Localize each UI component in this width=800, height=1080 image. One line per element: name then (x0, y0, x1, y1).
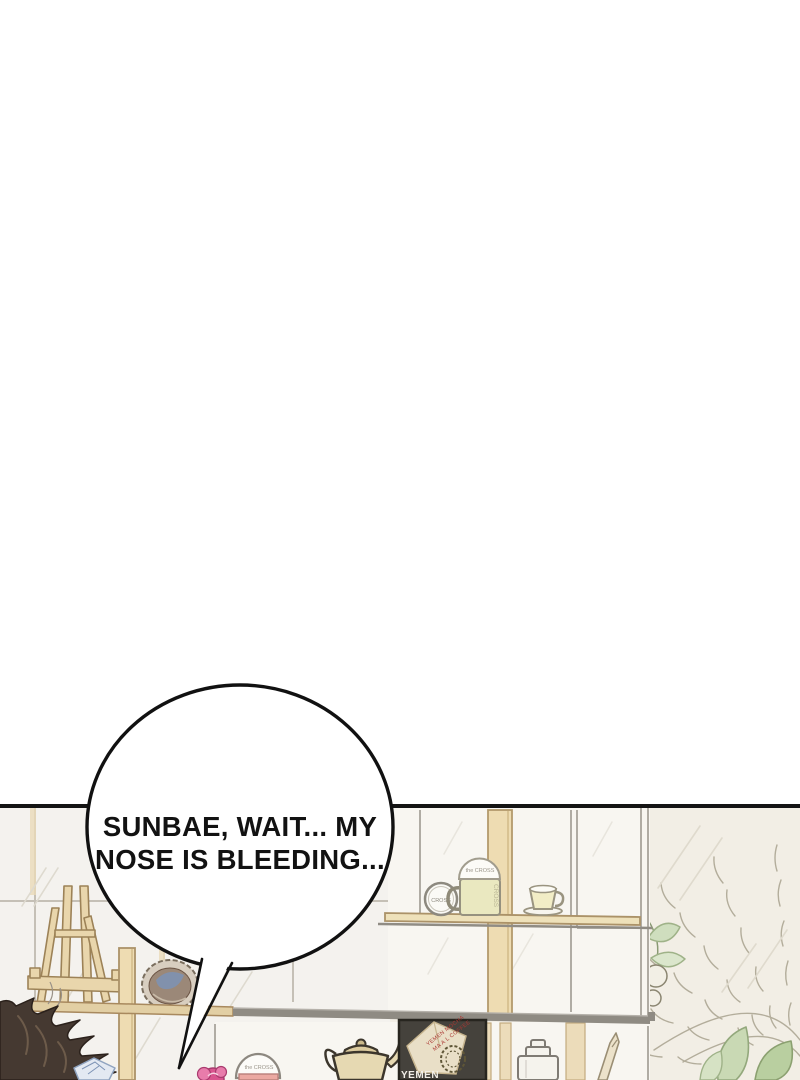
poster-title: YEMEN (401, 1070, 439, 1080)
bubble-text-line2: NOSE IS BLEEDING... (95, 844, 385, 875)
bubble-text-line1: SUNBAE, WAIT... MY (103, 811, 377, 842)
yemen-poster: YEMEN MOCHA MA A L COFFEE YEMEN (399, 1013, 486, 1080)
panel-artwork: CROSS the CROSS CROSS (0, 0, 800, 1080)
tumbler-label: the CROSS (245, 1065, 274, 1071)
decor-plate (142, 960, 198, 1010)
comic-panel: CROSS the CROSS CROSS (0, 0, 800, 1080)
mug-lid-label: the CROSS (466, 868, 495, 874)
rose (198, 1067, 227, 1080)
mug-side-label: CROSS (492, 884, 499, 908)
